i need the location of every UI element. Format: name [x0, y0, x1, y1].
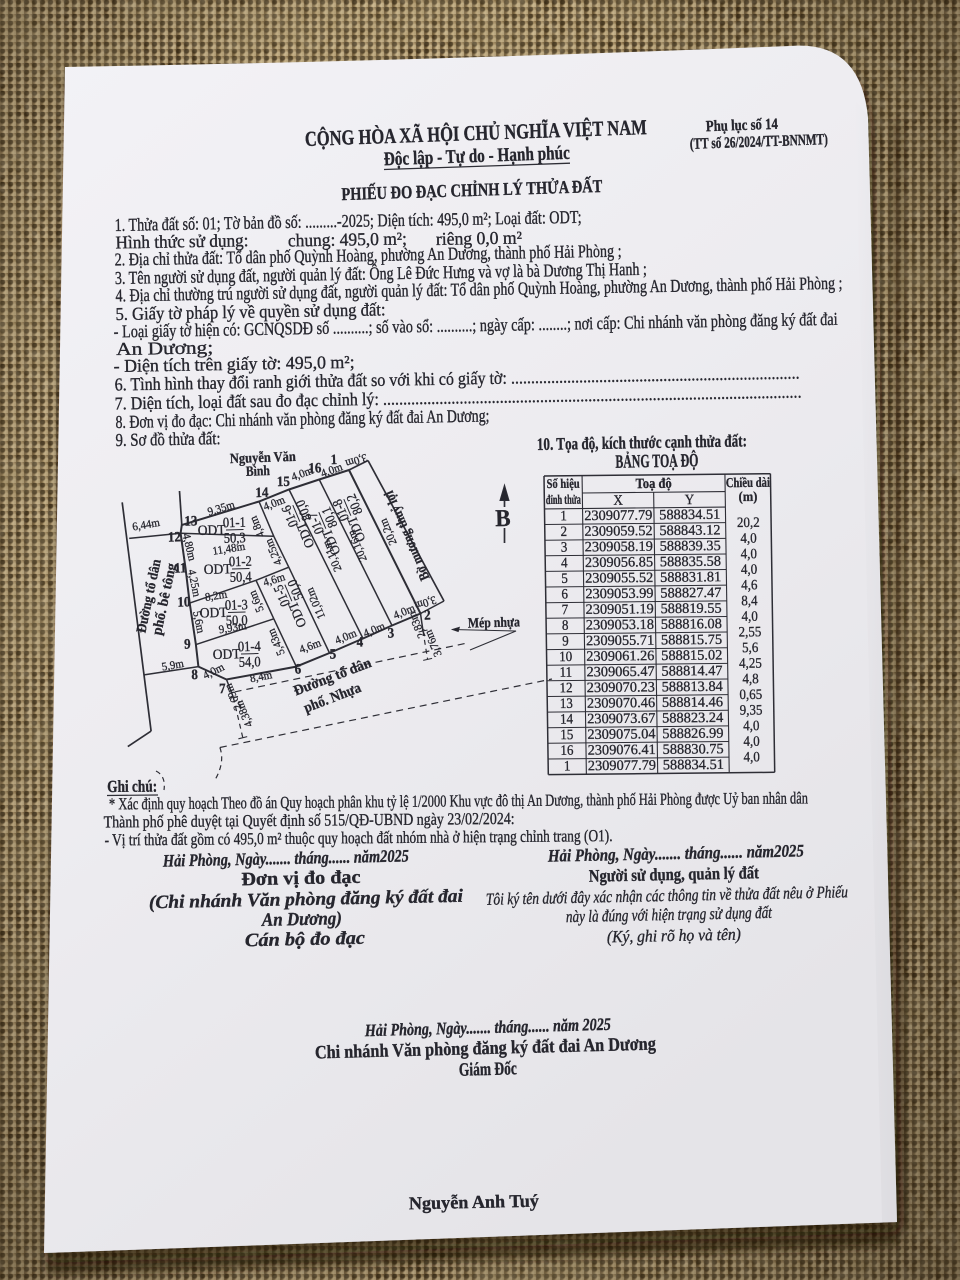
svg-text:588823.24: 588823.24: [662, 709, 724, 725]
svg-text:chung: 495,0 m²;: chung: 495,0 m²;: [288, 228, 407, 251]
svg-text:Toạ độ: Toạ độ: [635, 475, 671, 491]
svg-text:2309070.23: 2309070.23: [587, 679, 656, 695]
svg-text:Ghi chú:: Ghi chú:: [107, 777, 157, 796]
svg-text:11: 11: [559, 664, 572, 680]
svg-text:4,0: 4,0: [741, 546, 758, 562]
svg-text:Cán bộ đo đạc: Cán bộ đo đạc: [245, 927, 366, 951]
svg-text:13: 13: [560, 695, 573, 711]
svg-text:3: 3: [387, 625, 394, 641]
svg-text:đỉnh thửa: đỉnh thửa: [546, 492, 582, 507]
svg-text:588814.47: 588814.47: [661, 662, 723, 678]
svg-text:588834.51: 588834.51: [659, 506, 721, 522]
svg-text:4,0: 4,0: [741, 608, 758, 624]
svg-text:4,0: 4,0: [743, 717, 760, 733]
svg-text:5: 5: [561, 570, 568, 586]
svg-text:8,4: 8,4: [741, 592, 758, 608]
svg-text:15: 15: [277, 473, 291, 489]
svg-text:13: 13: [184, 513, 198, 529]
svg-text:Mép nhựa: Mép nhựa: [468, 614, 520, 631]
svg-text:2309076.41: 2309076.41: [588, 741, 657, 757]
svg-text:01-2: 01-2: [229, 553, 252, 570]
svg-text:10: 10: [559, 648, 572, 664]
svg-text:2309051.19: 2309051.19: [585, 601, 654, 617]
svg-text:7: 7: [562, 602, 569, 618]
svg-text:4,0: 4,0: [740, 530, 757, 546]
svg-text:Số hiệu: Số hiệu: [547, 476, 580, 491]
svg-text:588814.46: 588814.46: [662, 694, 724, 710]
svg-text:588843.12: 588843.12: [659, 522, 721, 538]
svg-text:4,8: 4,8: [742, 671, 759, 687]
svg-text:2309058.19: 2309058.19: [585, 538, 654, 554]
svg-text:9: 9: [562, 633, 569, 649]
svg-text:9: 9: [184, 636, 191, 652]
svg-text:01-1: 01-1: [223, 514, 246, 531]
svg-text:2309073.67: 2309073.67: [587, 710, 656, 726]
svg-text:2309055.71: 2309055.71: [586, 632, 655, 648]
svg-text:1: 1: [560, 508, 567, 524]
svg-text:14: 14: [255, 484, 269, 500]
svg-text:12: 12: [168, 529, 182, 545]
svg-text:Người sử dụng, quản lý đất: Người sử dụng, quản lý đất: [589, 864, 760, 886]
svg-text:588816.08: 588816.08: [661, 616, 723, 632]
svg-text:(Ký, ghi rõ họ và tên): (Ký, ghi rõ họ và tên): [607, 925, 741, 947]
svg-text:4,0: 4,0: [743, 749, 760, 765]
svg-text:16: 16: [560, 742, 573, 758]
svg-text:2309055.52: 2309055.52: [585, 569, 654, 585]
svg-text:01-3: 01-3: [225, 596, 249, 613]
svg-text:Đơn vị đo đạc: Đơn vị đo đạc: [241, 866, 361, 889]
svg-text:8: 8: [191, 666, 198, 682]
svg-text:Y: Y: [685, 491, 695, 507]
svg-text:3: 3: [561, 539, 568, 555]
svg-text:8: 8: [562, 617, 569, 633]
svg-text:54,0: 54,0: [239, 653, 262, 670]
svg-text:1: 1: [564, 758, 571, 774]
svg-text:20,2: 20,2: [737, 514, 760, 530]
svg-text:588819.55: 588819.55: [660, 600, 722, 616]
svg-text:4,0: 4,0: [741, 561, 758, 577]
svg-text:(m): (m): [738, 488, 757, 504]
svg-text:12: 12: [559, 680, 572, 696]
svg-text:4,0: 4,0: [743, 733, 760, 749]
svg-text:2309053.99: 2309053.99: [585, 585, 654, 601]
svg-text:Nguyễn Anh Tuý: Nguyễn Anh Tuý: [409, 1190, 540, 1214]
svg-text:9. Sơ đồ thửa đất:: 9. Sơ đồ thửa đất:: [115, 428, 220, 451]
svg-text:588815.75: 588815.75: [661, 631, 723, 647]
svg-text:50,0: 50,0: [226, 612, 249, 629]
svg-text:588831.81: 588831.81: [660, 569, 722, 585]
svg-text:14: 14: [560, 711, 573, 727]
svg-text:2309061.26: 2309061.26: [586, 648, 655, 664]
svg-text:2309077.79: 2309077.79: [584, 507, 653, 523]
svg-text:50,3: 50,3: [224, 529, 247, 546]
svg-text:5: 5: [329, 646, 336, 662]
svg-text:15: 15: [560, 726, 573, 742]
svg-text:5,6: 5,6: [742, 639, 759, 655]
svg-text:Giám Đốc: Giám Đốc: [459, 1058, 518, 1081]
svg-text:50,4: 50,4: [230, 568, 253, 585]
svg-text:01-4: 01-4: [238, 638, 262, 655]
svg-text:588827.47: 588827.47: [660, 584, 722, 600]
svg-text:2309070.46: 2309070.46: [587, 694, 656, 710]
svg-text:2309059.52: 2309059.52: [584, 523, 653, 539]
svg-text:riêng 0,0 m²: riêng 0,0 m²: [436, 227, 522, 249]
svg-text:6: 6: [294, 661, 301, 677]
svg-text:588826.99: 588826.99: [662, 725, 724, 741]
svg-text:0,65: 0,65: [739, 686, 762, 702]
svg-text:2309065.47: 2309065.47: [586, 663, 655, 679]
svg-text:4,25: 4,25: [739, 655, 762, 671]
svg-text:6: 6: [561, 586, 568, 602]
svg-text:2309053.18: 2309053.18: [586, 616, 655, 632]
svg-text:10: 10: [177, 594, 191, 610]
svg-text:2: 2: [560, 523, 567, 539]
svg-text:588813.84: 588813.84: [662, 678, 724, 694]
svg-text:X: X: [613, 492, 623, 508]
svg-text:588830.75: 588830.75: [662, 741, 724, 757]
svg-text:588815.02: 588815.02: [661, 647, 723, 663]
svg-text:9,35: 9,35: [740, 702, 763, 718]
svg-text:Hình thức sử dụng:: Hình thức sử dụng:: [115, 230, 248, 253]
svg-text:2309075.04: 2309075.04: [587, 726, 656, 742]
svg-text:588839.35: 588839.35: [660, 537, 722, 553]
svg-text:2309056.85: 2309056.85: [585, 554, 654, 570]
svg-text:4,6: 4,6: [741, 577, 758, 593]
svg-text:2309077.79: 2309077.79: [588, 757, 657, 773]
svg-text:Bình: Bình: [246, 463, 271, 479]
svg-text:2,55: 2,55: [738, 624, 761, 640]
svg-text:B: B: [495, 505, 511, 532]
svg-text:588835.58: 588835.58: [660, 553, 722, 569]
svg-text:An Dương): An Dương): [261, 908, 342, 931]
svg-text:BẢNG TOẠ ĐỘ: BẢNG TOẠ ĐỘ: [615, 450, 698, 472]
svg-text:588834.51: 588834.51: [663, 756, 725, 772]
svg-text:4: 4: [561, 555, 568, 571]
